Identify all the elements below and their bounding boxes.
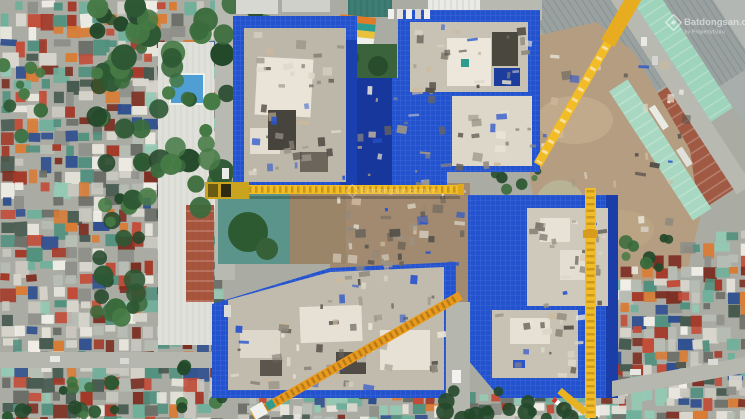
watermark-brand: Batdongsan.com.vn	[361, 187, 438, 196]
watermark-brand: Batdongsan.com.vn	[684, 17, 745, 28]
construction-site-aerial-view: Batdongsan.com.vn by PropertyGuru Batdon…	[0, 0, 745, 419]
watermark-byline: by PropertyGuru	[685, 30, 725, 36]
aerial-photograph: Batdongsan.com.vn by PropertyGuru Batdon…	[0, 0, 745, 419]
